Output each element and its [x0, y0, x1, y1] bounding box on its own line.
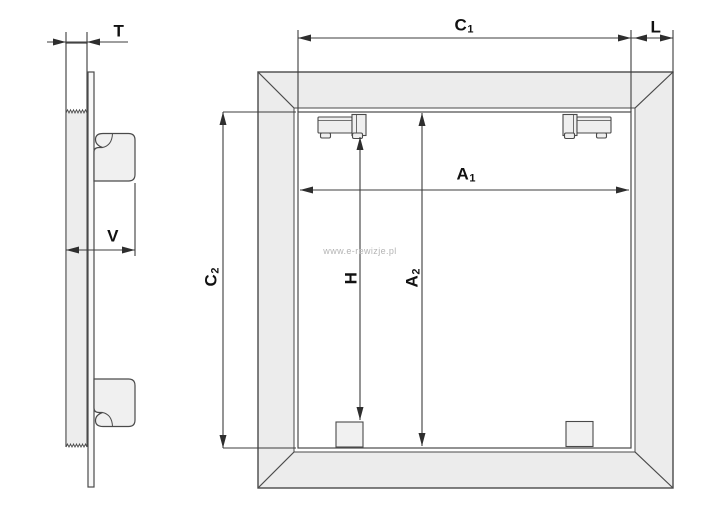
latch-top-right-foot-b — [597, 133, 607, 138]
wall-panel-shaded — [67, 112, 87, 444]
arrowhead — [634, 35, 647, 42]
catch-bottom-right — [566, 422, 593, 447]
latch-top-right-cam — [563, 115, 577, 136]
watermark-text: www.e-rewizje.pl — [323, 246, 396, 256]
latch-top-left-cam — [352, 115, 366, 136]
catch-bottom-left — [336, 422, 363, 447]
latch-top-right-foot-a — [565, 133, 575, 139]
arrowhead — [298, 35, 311, 42]
dim-label-h: H — [343, 272, 360, 285]
technical-drawing-page: T V C1 L A1 C2 H A2 www.e-rewizje.pl — [0, 0, 720, 511]
latch-top-right-body — [577, 117, 611, 133]
latch-bracket-bottom — [94, 379, 135, 427]
dim-label-c1: C1 — [455, 17, 474, 34]
dim-label-t: T — [114, 23, 125, 40]
dim-label-c2: C2 — [203, 268, 220, 287]
dim-label-a1: A1 — [457, 166, 476, 183]
latch-top-left-body — [318, 117, 352, 133]
latch-top-left-foot-b — [353, 133, 363, 139]
arrowhead — [618, 35, 631, 42]
arrowhead — [53, 39, 66, 46]
dim-label-v: V — [107, 228, 119, 245]
door-panel-edge — [88, 72, 94, 487]
dim-label-a2: A2 — [404, 269, 421, 288]
front-view — [258, 72, 673, 488]
arrowhead — [220, 435, 227, 448]
arrowhead — [87, 39, 100, 46]
latch-bracket-top — [94, 134, 135, 182]
arrowhead — [122, 247, 135, 254]
latch-top-left-foot-a — [321, 133, 331, 138]
dim-label-l: L — [651, 19, 662, 36]
arrowhead — [220, 112, 227, 125]
side-view — [66, 43, 135, 487]
arrowhead — [660, 35, 673, 42]
